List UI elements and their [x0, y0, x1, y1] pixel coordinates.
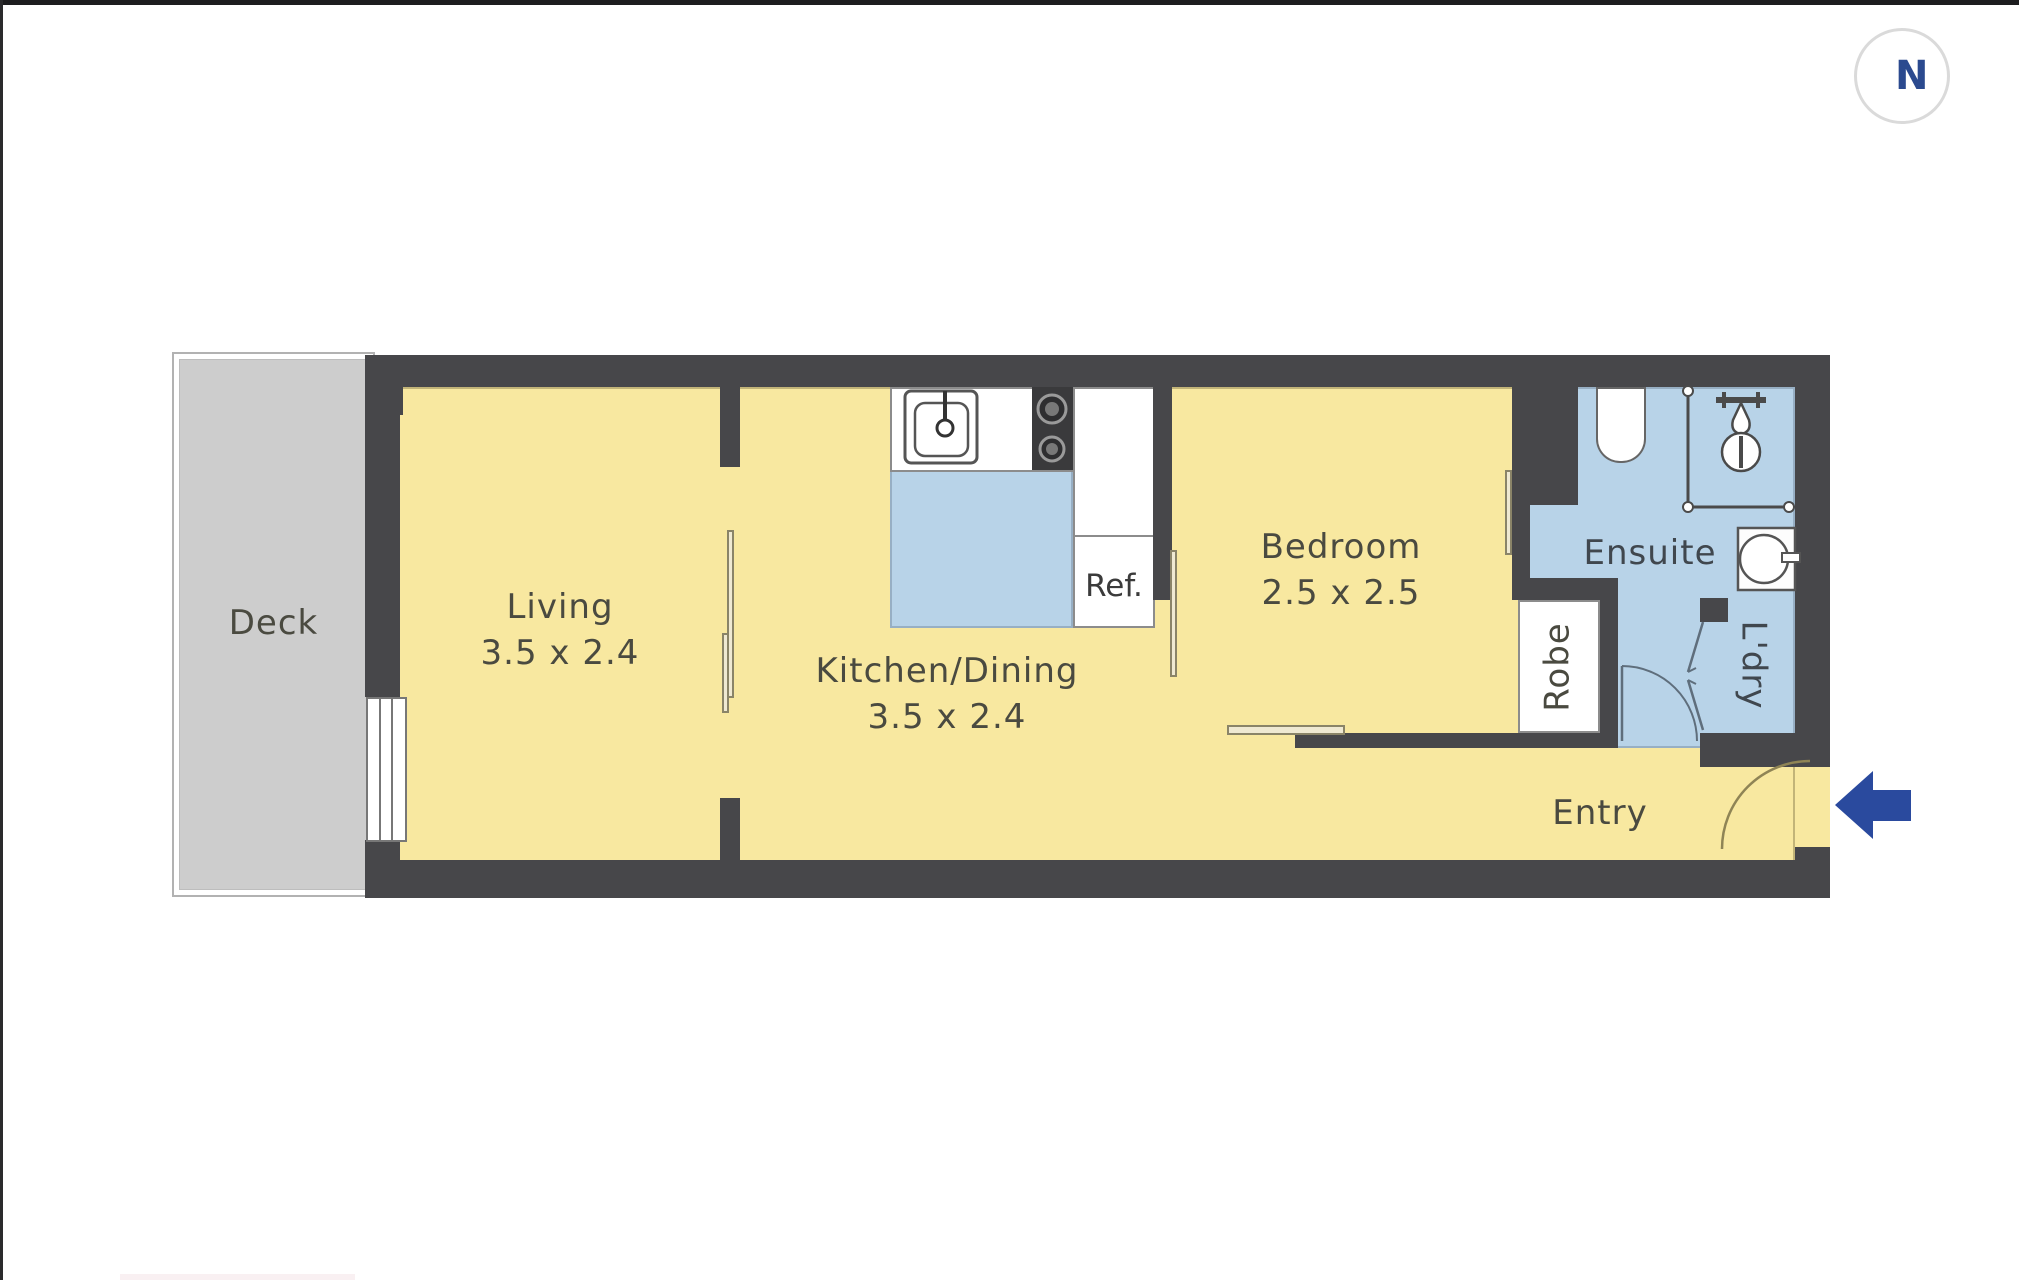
bedroom-name: Bedroom	[1201, 524, 1481, 570]
kitchen-dining-label: Kitchen/Dining 3.5 x 2.4	[787, 648, 1107, 740]
refrigerator-label: Ref.	[1073, 568, 1155, 604]
entry-arrow-icon	[1835, 771, 1911, 839]
entry-door-arc	[1722, 761, 1810, 849]
ensuite-label: Ensuite	[1560, 530, 1740, 576]
basin-icon	[1738, 528, 1800, 590]
robe-label: Robe	[1478, 644, 1638, 690]
kitchen-dining-dimensions: 3.5 x 2.4	[787, 694, 1107, 740]
robe-name: Robe	[1535, 622, 1581, 711]
living-name: Living	[430, 584, 690, 630]
entry-label: Entry	[1510, 790, 1690, 836]
north-compass: N	[1854, 28, 1950, 124]
cooktop-icon	[1032, 387, 1073, 470]
bedroom-dimensions: 2.5 x 2.5	[1201, 570, 1481, 616]
laundry-name: L'dry	[1730, 621, 1776, 710]
deck-label: Deck	[172, 600, 375, 646]
living-dimensions: 3.5 x 2.4	[430, 630, 690, 676]
shower-head-icon	[1716, 392, 1766, 471]
floorplan-page: N Deck Living 3.5 x 2.4 Kitchen/Dining 3…	[0, 0, 2019, 1280]
living-label: Living 3.5 x 2.4	[430, 584, 690, 676]
bedroom-label: Bedroom 2.5 x 2.5	[1201, 524, 1481, 616]
sink-icon	[905, 391, 977, 463]
laundry-label: L'dry	[1673, 642, 1833, 688]
compass-north-label: N	[1895, 53, 1928, 99]
kitchen-dining-name: Kitchen/Dining	[787, 648, 1107, 694]
